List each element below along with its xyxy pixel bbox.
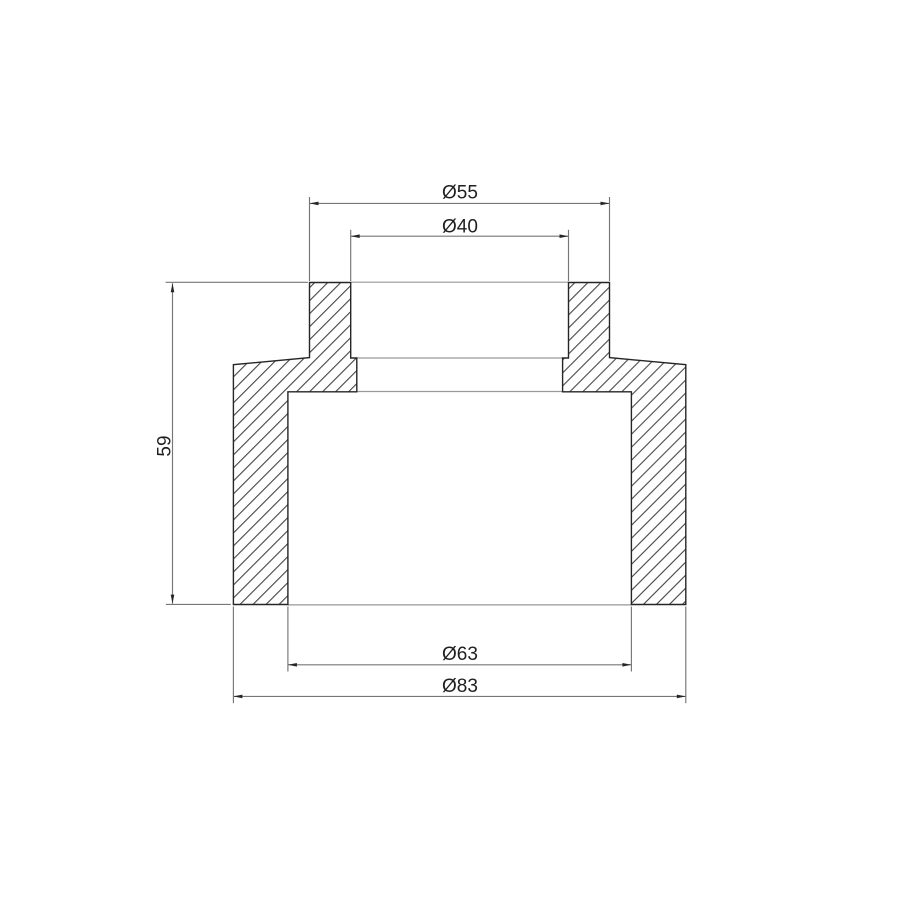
svg-text:Ø63: Ø63 — [442, 644, 478, 665]
svg-text:Ø55: Ø55 — [442, 183, 478, 204]
svg-text:Ø40: Ø40 — [442, 217, 478, 238]
svg-text:59: 59 — [155, 435, 176, 456]
svg-text:Ø83: Ø83 — [442, 676, 478, 697]
